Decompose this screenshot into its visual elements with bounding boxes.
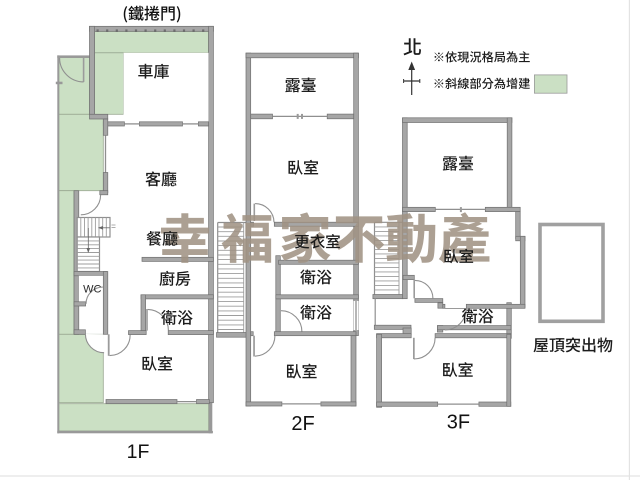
svg-text:1F: 1F	[127, 441, 150, 463]
svg-text:WC: WC	[83, 284, 101, 296]
svg-text:2F: 2F	[291, 413, 314, 435]
svg-text:3F: 3F	[447, 412, 470, 434]
